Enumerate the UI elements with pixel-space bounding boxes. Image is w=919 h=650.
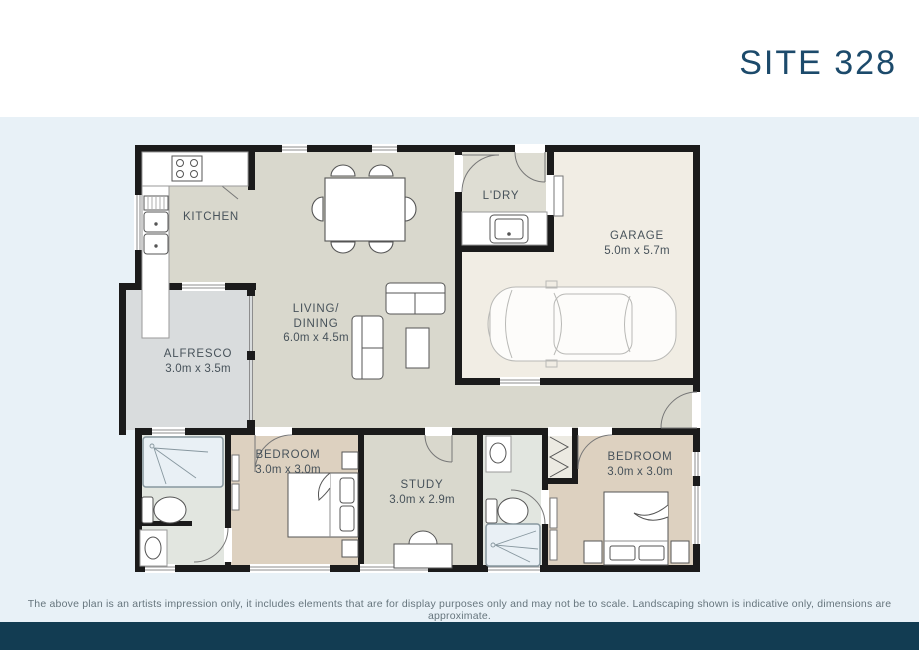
room-label-alfresco: ALFRESCO3.0m x 3.5m <box>164 347 232 376</box>
laundry-fixtures <box>462 212 547 245</box>
dining-table <box>312 165 416 253</box>
room-label-laundry: L'DRY <box>483 189 520 204</box>
room-label-bedroom2: BEDROOM3.0m x 3.0m <box>607 450 672 479</box>
cooktop-icon <box>172 156 202 181</box>
shower-icon <box>143 437 223 487</box>
room-label-living: LIVING/DINING 6.0m x 4.5m <box>283 302 348 346</box>
footer-bar <box>0 622 919 650</box>
toilet-icon <box>486 498 528 524</box>
shower-icon <box>486 524 540 566</box>
vanity-icon <box>140 530 167 566</box>
room-label-kitchen: KITCHEN <box>183 210 239 225</box>
laundry-tub-icon <box>490 215 528 243</box>
vanity-icon <box>486 436 511 472</box>
bed <box>604 492 668 565</box>
toilet-icon <box>142 497 186 523</box>
disclaimer-text: The above plan is an artists impression … <box>0 598 919 622</box>
floor-plan <box>0 0 919 650</box>
page: SITE 328 <box>0 0 919 650</box>
car-icon <box>488 281 676 367</box>
bed <box>288 473 358 537</box>
room-label-garage: GARAGE5.0m x 5.7m <box>604 229 669 258</box>
sink-icon <box>144 196 168 254</box>
room-label-study: STUDY3.0m x 2.9m <box>389 478 454 507</box>
room-label-bedroom1: BEDROOM3.0m x 3.0m <box>255 448 320 477</box>
